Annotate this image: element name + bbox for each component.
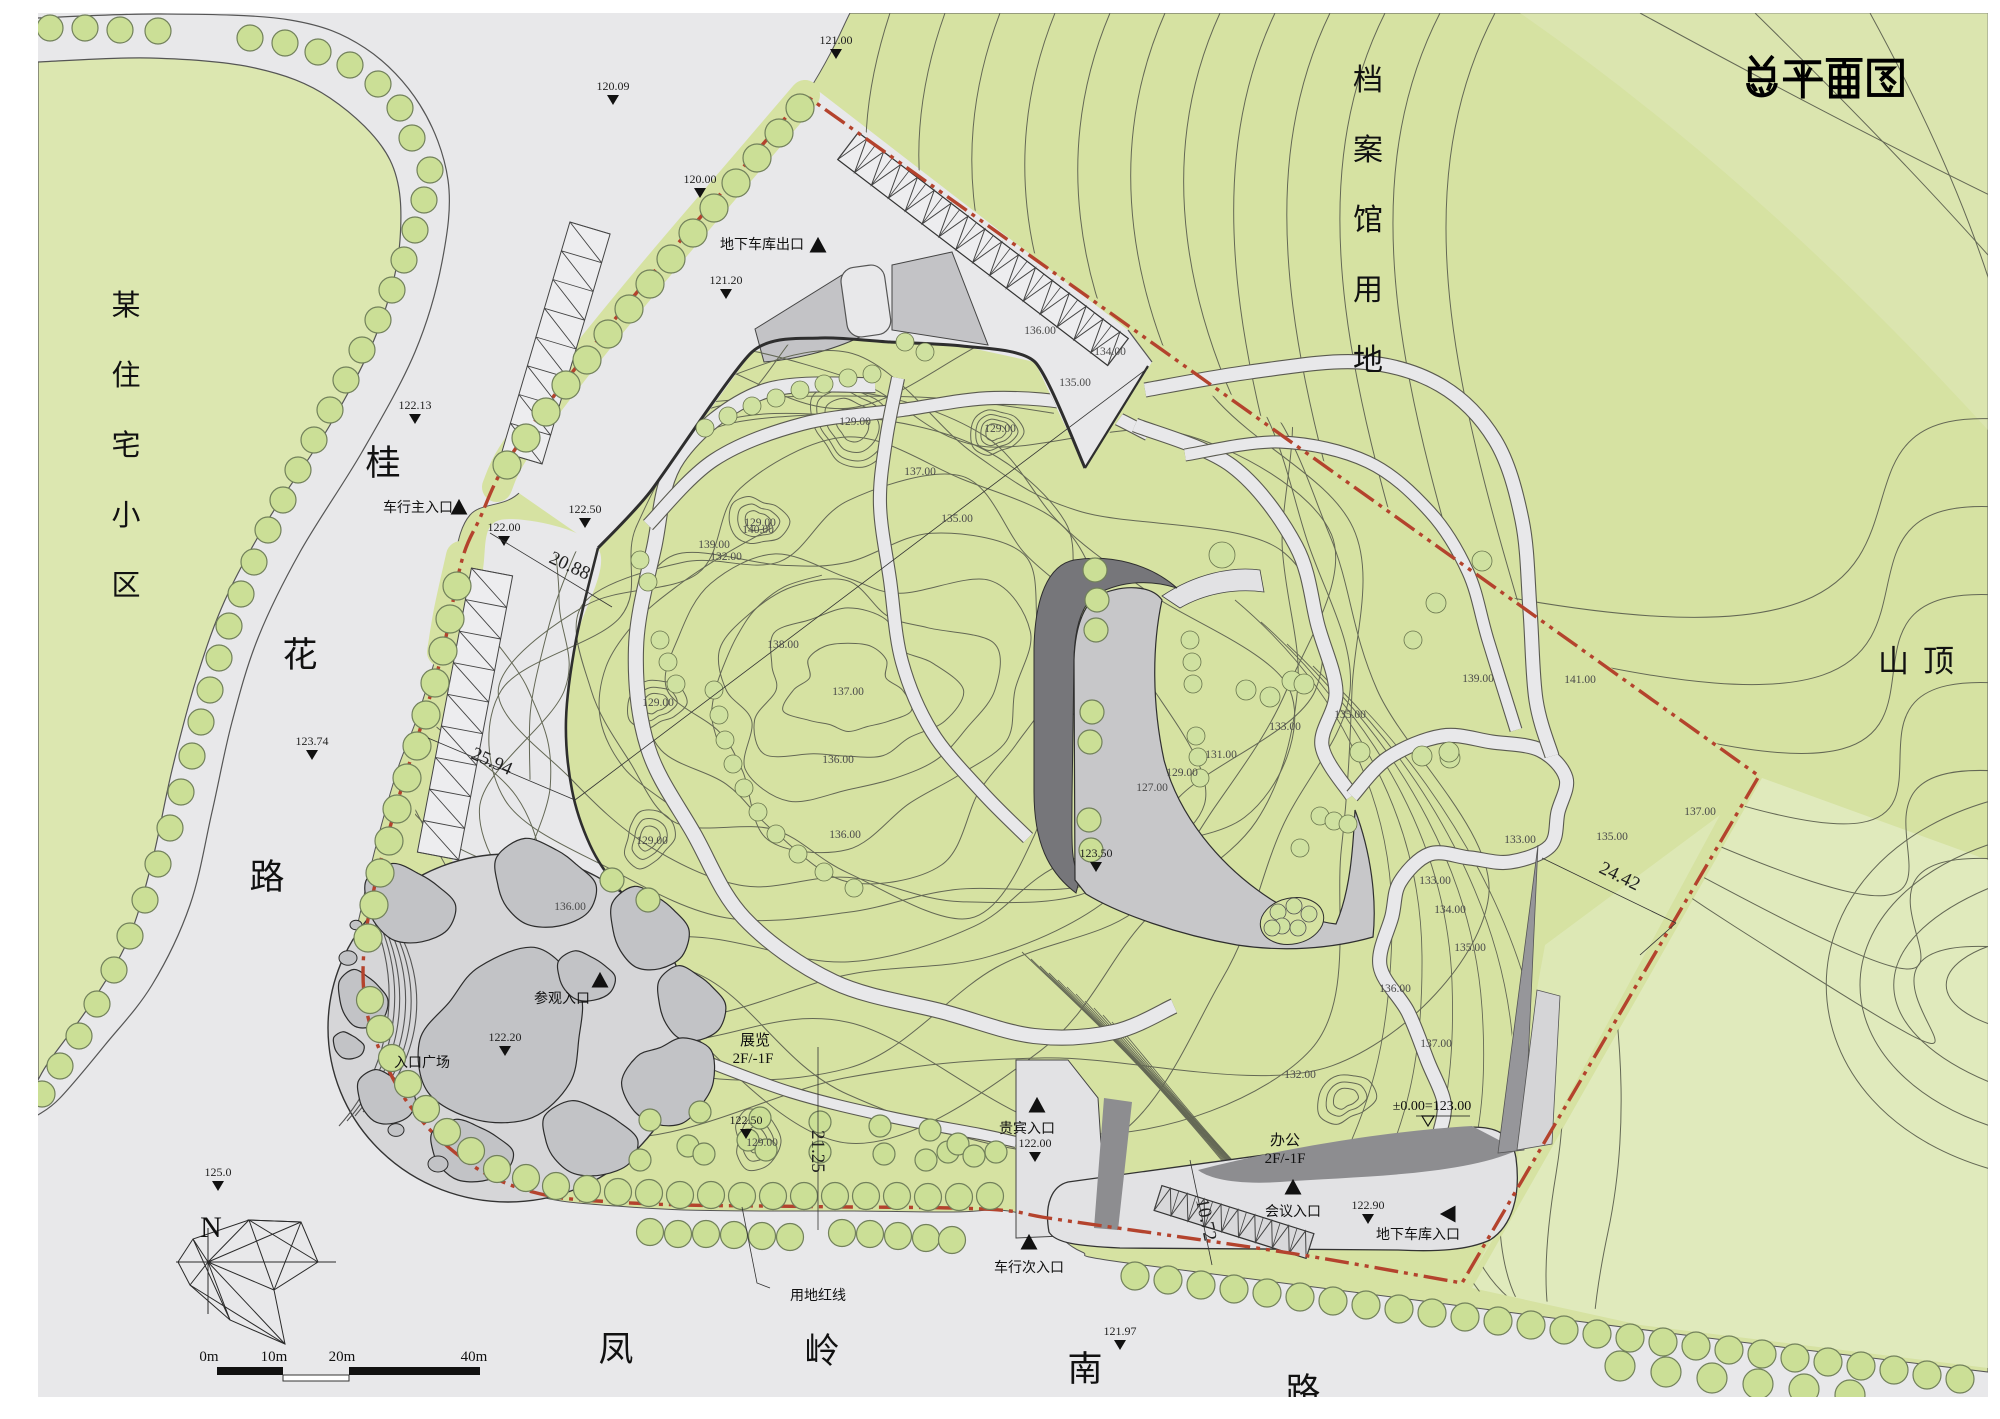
svg-text:住: 住: [111, 359, 140, 392]
svg-text:N: N: [200, 1211, 222, 1244]
svg-text:花: 花: [282, 636, 317, 675]
svg-text:山顶: 山顶: [1878, 644, 1968, 679]
svg-text:南: 南: [1067, 1350, 1102, 1389]
svg-text:136.00: 136.00: [1024, 325, 1056, 337]
svg-text:136.00: 136.00: [1379, 983, 1411, 995]
svg-text:136.00: 136.00: [822, 754, 854, 766]
svg-text:桂: 桂: [365, 444, 400, 483]
svg-text:127.00: 127.00: [1136, 782, 1168, 794]
svg-text:122.00: 122.00: [488, 520, 521, 534]
svg-text:134.00: 134.00: [1434, 904, 1466, 916]
svg-text:133.00: 133.00: [1269, 721, 1301, 733]
svg-text:120.00: 120.00: [684, 172, 717, 186]
svg-text:122.50: 122.50: [569, 502, 602, 516]
svg-text:136.00: 136.00: [829, 829, 861, 841]
svg-text:入口广场: 入口广场: [394, 1055, 450, 1071]
svg-text:122.90: 122.90: [1352, 1198, 1385, 1212]
svg-text:129.00: 129.00: [746, 1137, 778, 1149]
svg-text:137.00: 137.00: [1420, 1038, 1452, 1050]
svg-text:凤: 凤: [598, 1330, 633, 1369]
svg-text:车行次入口: 车行次入口: [994, 1259, 1064, 1276]
svg-text:135.00: 135.00: [1059, 377, 1091, 389]
svg-text:129.00: 129.00: [839, 416, 871, 428]
svg-text:122.13: 122.13: [399, 398, 432, 412]
svg-text:10m: 10m: [261, 1349, 288, 1365]
svg-text:馆: 馆: [1353, 204, 1383, 237]
svg-text:133.00: 133.00: [1419, 875, 1451, 887]
svg-text:121.20: 121.20: [710, 273, 743, 287]
svg-text:131.00: 131.00: [1205, 749, 1237, 761]
svg-text:21.25: 21.25: [807, 1130, 828, 1173]
svg-text:某: 某: [111, 290, 140, 322]
svg-text:136.00: 136.00: [554, 901, 586, 913]
svg-text:地下车库入口: 地下车库入口: [1376, 1226, 1460, 1243]
svg-text:路: 路: [249, 858, 284, 897]
svg-text:20m: 20m: [329, 1349, 356, 1365]
svg-text:132.00: 132.00: [710, 551, 742, 563]
svg-text:2F/-1F: 2F/-1F: [733, 1051, 774, 1067]
svg-text:展览: 展览: [740, 1032, 770, 1049]
svg-text:135.00: 135.00: [941, 513, 973, 525]
svg-text:133.00: 133.00: [1504, 834, 1536, 846]
svg-text:地: 地: [1353, 344, 1383, 377]
svg-text:121.97: 121.97: [1104, 1324, 1137, 1338]
svg-text:129.00: 129.00: [1166, 767, 1198, 779]
svg-text:案: 案: [1353, 134, 1383, 167]
svg-text:2F/-1F: 2F/-1F: [1265, 1151, 1306, 1167]
svg-text:129.00: 129.00: [642, 697, 674, 709]
svg-text:137.00: 137.00: [904, 466, 936, 478]
svg-text:档: 档: [1353, 64, 1383, 97]
svg-text:办公: 办公: [1270, 1132, 1300, 1149]
svg-text:129.00: 129.00: [984, 423, 1016, 435]
svg-text:132.00: 132.00: [1284, 1069, 1316, 1081]
svg-text:137.00: 137.00: [1684, 806, 1716, 818]
svg-text:宅: 宅: [111, 429, 140, 462]
svg-text:122.20: 122.20: [489, 1030, 522, 1044]
svg-text:135.00: 135.00: [1454, 942, 1486, 954]
svg-text:岭: 岭: [804, 1332, 839, 1371]
svg-text:120.09: 120.09: [597, 79, 630, 93]
svg-text:137.00: 137.00: [832, 686, 864, 698]
svg-text:参观入口: 参观入口: [534, 990, 590, 1007]
svg-text:±0.00=123.00: ±0.00=123.00: [1393, 1099, 1472, 1114]
svg-text:40m: 40m: [461, 1349, 488, 1365]
svg-text:车行主入口: 车行主入口: [383, 499, 453, 516]
svg-text:用地红线: 用地红线: [790, 1288, 846, 1304]
svg-text:用: 用: [1353, 274, 1383, 307]
svg-text:125.0: 125.0: [205, 1165, 232, 1179]
svg-text:129.00: 129.00: [636, 835, 668, 847]
svg-text:121.00: 121.00: [820, 33, 853, 47]
svg-text:小: 小: [111, 500, 140, 532]
svg-text:122.50: 122.50: [730, 1113, 763, 1127]
svg-text:区: 区: [111, 570, 140, 602]
svg-text:139.00: 139.00: [1462, 673, 1494, 685]
svg-text:122.00: 122.00: [1019, 1136, 1052, 1150]
svg-text:贵宾入口: 贵宾入口: [999, 1121, 1055, 1137]
svg-text:140.00: 140.00: [742, 524, 774, 536]
svg-text:135.00: 135.00: [1596, 831, 1628, 843]
svg-text:138.00: 138.00: [767, 639, 799, 651]
svg-text:123.74: 123.74: [296, 734, 329, 748]
svg-text:0m: 0m: [199, 1349, 219, 1365]
svg-text:地下车库出口: 地下车库出口: [720, 236, 804, 253]
svg-text:会议入口: 会议入口: [1265, 1204, 1321, 1220]
svg-text:134.00: 134.00: [1094, 346, 1126, 358]
svg-text:139.00: 139.00: [698, 539, 730, 551]
svg-text:135.00: 135.00: [1334, 709, 1366, 721]
svg-text:141.00: 141.00: [1564, 674, 1596, 686]
svg-text:123.50: 123.50: [1080, 846, 1113, 860]
